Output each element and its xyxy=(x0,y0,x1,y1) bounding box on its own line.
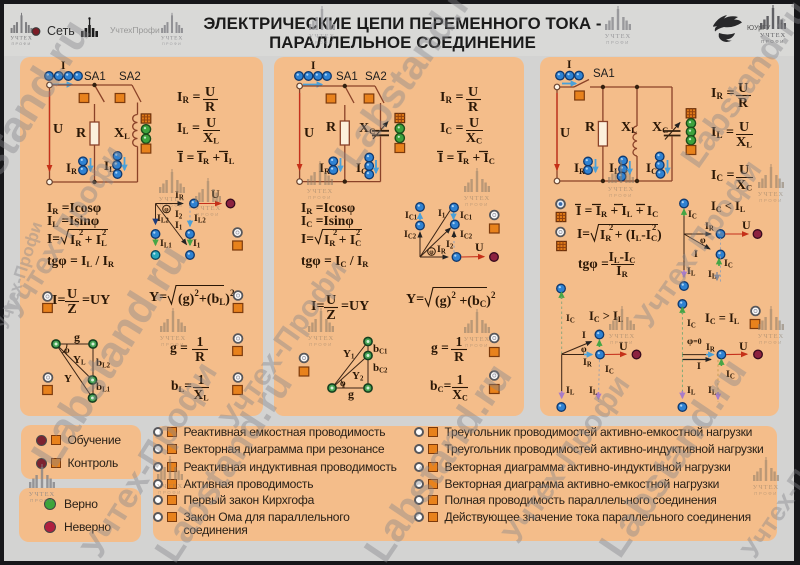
svg-text:XL: XL xyxy=(736,135,752,150)
svg-text:2: 2 xyxy=(609,222,613,232)
svg-text:2: 2 xyxy=(652,222,656,232)
svg-text:U: U xyxy=(469,116,479,131)
svg-text:XL: XL xyxy=(621,120,637,135)
svg-text:g: g xyxy=(348,387,354,401)
svg-text:Z: Z xyxy=(67,302,76,317)
svg-text:U: U xyxy=(739,339,748,353)
svg-text:Y2: Y2 xyxy=(352,370,364,383)
svg-text:IC2: IC2 xyxy=(460,229,473,241)
svg-text:IR: IR xyxy=(583,357,592,369)
svg-text:I = IR + IC: I = IR + IC xyxy=(438,150,495,166)
svg-text:IC > IL: IC > IL xyxy=(589,309,623,324)
svg-text:IC: IC xyxy=(646,160,657,176)
svg-text:1: 1 xyxy=(197,334,204,349)
svg-text:R: R xyxy=(76,126,87,141)
svg-text:I1: I1 xyxy=(193,238,201,250)
svg-text:φ=0: φ=0 xyxy=(687,336,702,347)
svg-text:IR =: IR = xyxy=(177,90,200,105)
svg-text:XC: XC xyxy=(652,120,668,135)
svg-text:I1: I1 xyxy=(175,220,183,232)
svg-text:I: I xyxy=(582,330,586,341)
svg-text:φ: φ xyxy=(64,345,70,355)
svg-text:IL: IL xyxy=(708,269,717,281)
svg-text:XL: XL xyxy=(114,126,130,141)
svg-text:SA1: SA1 xyxy=(593,68,615,80)
svg-text:U: U xyxy=(205,85,215,100)
svg-text:I: I xyxy=(567,59,572,71)
svg-text:R: R xyxy=(326,120,337,135)
svg-text:g: g xyxy=(74,330,80,344)
svg-text:I=: I= xyxy=(301,231,314,246)
svg-text:IC: IC xyxy=(687,318,696,330)
svg-text:IR: IR xyxy=(706,342,715,354)
svg-text:I: I xyxy=(697,361,701,372)
svg-text:U: U xyxy=(67,287,77,302)
svg-text:(g)2 +(bC)2: (g)2 +(bC)2 xyxy=(435,290,496,309)
svg-text:XC: XC xyxy=(466,131,482,146)
svg-text:IC1: IC1 xyxy=(460,210,473,222)
svg-text:g =: g = xyxy=(431,340,449,355)
svg-text:U: U xyxy=(560,126,570,141)
svg-text:SA1: SA1 xyxy=(336,71,358,83)
svg-text:R: R xyxy=(468,100,479,115)
svg-text:IC1: IC1 xyxy=(405,210,418,222)
svg-text:1: 1 xyxy=(457,372,464,387)
svg-text:=UY: =UY xyxy=(82,293,110,308)
svg-text:Z: Z xyxy=(326,308,335,323)
svg-text:IC =: IC = xyxy=(440,121,463,136)
svg-text:Y1: Y1 xyxy=(343,348,355,361)
svg-text:I2: I2 xyxy=(175,209,183,221)
svg-text:XL: XL xyxy=(203,131,219,146)
svg-text:IR: IR xyxy=(616,263,628,279)
svg-text:U: U xyxy=(53,122,63,137)
svg-text:bC1: bC1 xyxy=(373,343,388,356)
svg-text:I=: I= xyxy=(577,226,590,241)
svg-text:I: I xyxy=(311,60,316,72)
svg-text:φ: φ xyxy=(429,248,434,256)
svg-text:SA2: SA2 xyxy=(119,71,141,83)
svg-text:IR =: IR = xyxy=(440,90,463,105)
svg-text:2: 2 xyxy=(102,227,106,237)
svg-text:bC2: bC2 xyxy=(373,362,388,375)
svg-text:I = IR + IL: I = IR + IL xyxy=(178,150,235,166)
svg-text:(g)2+(bL)2: (g)2+(bL)2 xyxy=(178,288,235,307)
svg-text:U: U xyxy=(206,116,216,131)
svg-text:IC: IC xyxy=(566,313,575,325)
svg-text:IL: IL xyxy=(566,385,575,397)
svg-text:2: 2 xyxy=(356,227,360,237)
svg-text:IC: IC xyxy=(724,258,733,270)
svg-text:bC=: bC= xyxy=(430,378,451,394)
svg-text:IL-IC: IL-IC xyxy=(609,249,636,265)
svg-text:I1: I1 xyxy=(438,208,446,220)
svg-text:U: U xyxy=(468,85,478,100)
svg-text:U: U xyxy=(742,218,751,232)
svg-text:φ: φ xyxy=(340,378,346,388)
svg-text:=UY: =UY xyxy=(341,299,369,314)
svg-text:SA1: SA1 xyxy=(84,71,106,83)
svg-text:U: U xyxy=(304,126,314,141)
svg-text:U: U xyxy=(475,240,484,254)
svg-text:Y=: Y= xyxy=(406,292,424,307)
svg-text:I2: I2 xyxy=(446,239,454,251)
svg-text:R: R xyxy=(585,120,596,135)
svg-text:I = IR + IL + IC: I = IR + IL + IC xyxy=(576,203,658,219)
svg-text:2: 2 xyxy=(333,227,337,237)
svg-text:R: R xyxy=(205,100,216,115)
svg-text:R: R xyxy=(454,349,464,364)
svg-text:1: 1 xyxy=(456,334,463,349)
svg-text:IC2: IC2 xyxy=(404,229,417,241)
svg-text:I=: I= xyxy=(52,293,65,308)
svg-text:IR: IR xyxy=(66,160,77,176)
svg-text:IL =: IL = xyxy=(177,121,200,136)
svg-text:IL2: IL2 xyxy=(157,213,169,225)
svg-text:tgφ =: tgφ = xyxy=(578,256,609,271)
svg-text:IR: IR xyxy=(437,244,446,256)
svg-text:φ: φ xyxy=(581,344,587,354)
svg-text:IC = IL: IC = IL xyxy=(705,311,739,326)
